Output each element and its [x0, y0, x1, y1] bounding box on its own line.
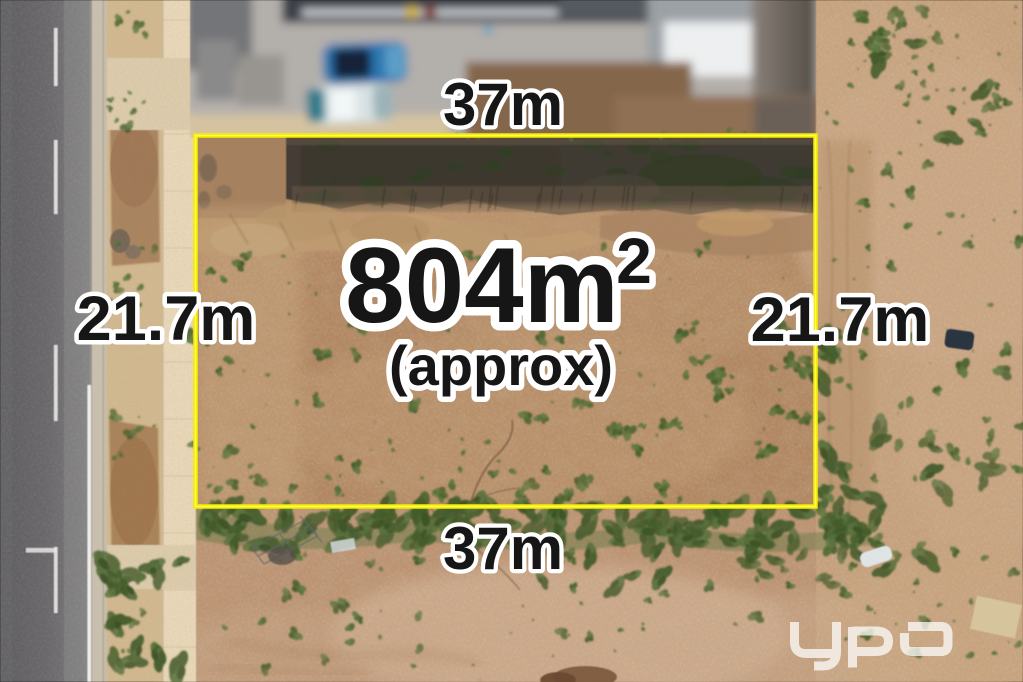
svg-text:21.7m: 21.7m: [77, 284, 256, 354]
svg-text:2: 2: [616, 225, 652, 297]
svg-text:37m: 37m: [443, 515, 563, 582]
svg-text:37m: 37m: [443, 71, 563, 138]
svg-text:804m: 804m: [345, 225, 619, 345]
svg-text:(approx): (approx): [389, 334, 613, 397]
svg-text:21.7m: 21.7m: [751, 285, 930, 355]
